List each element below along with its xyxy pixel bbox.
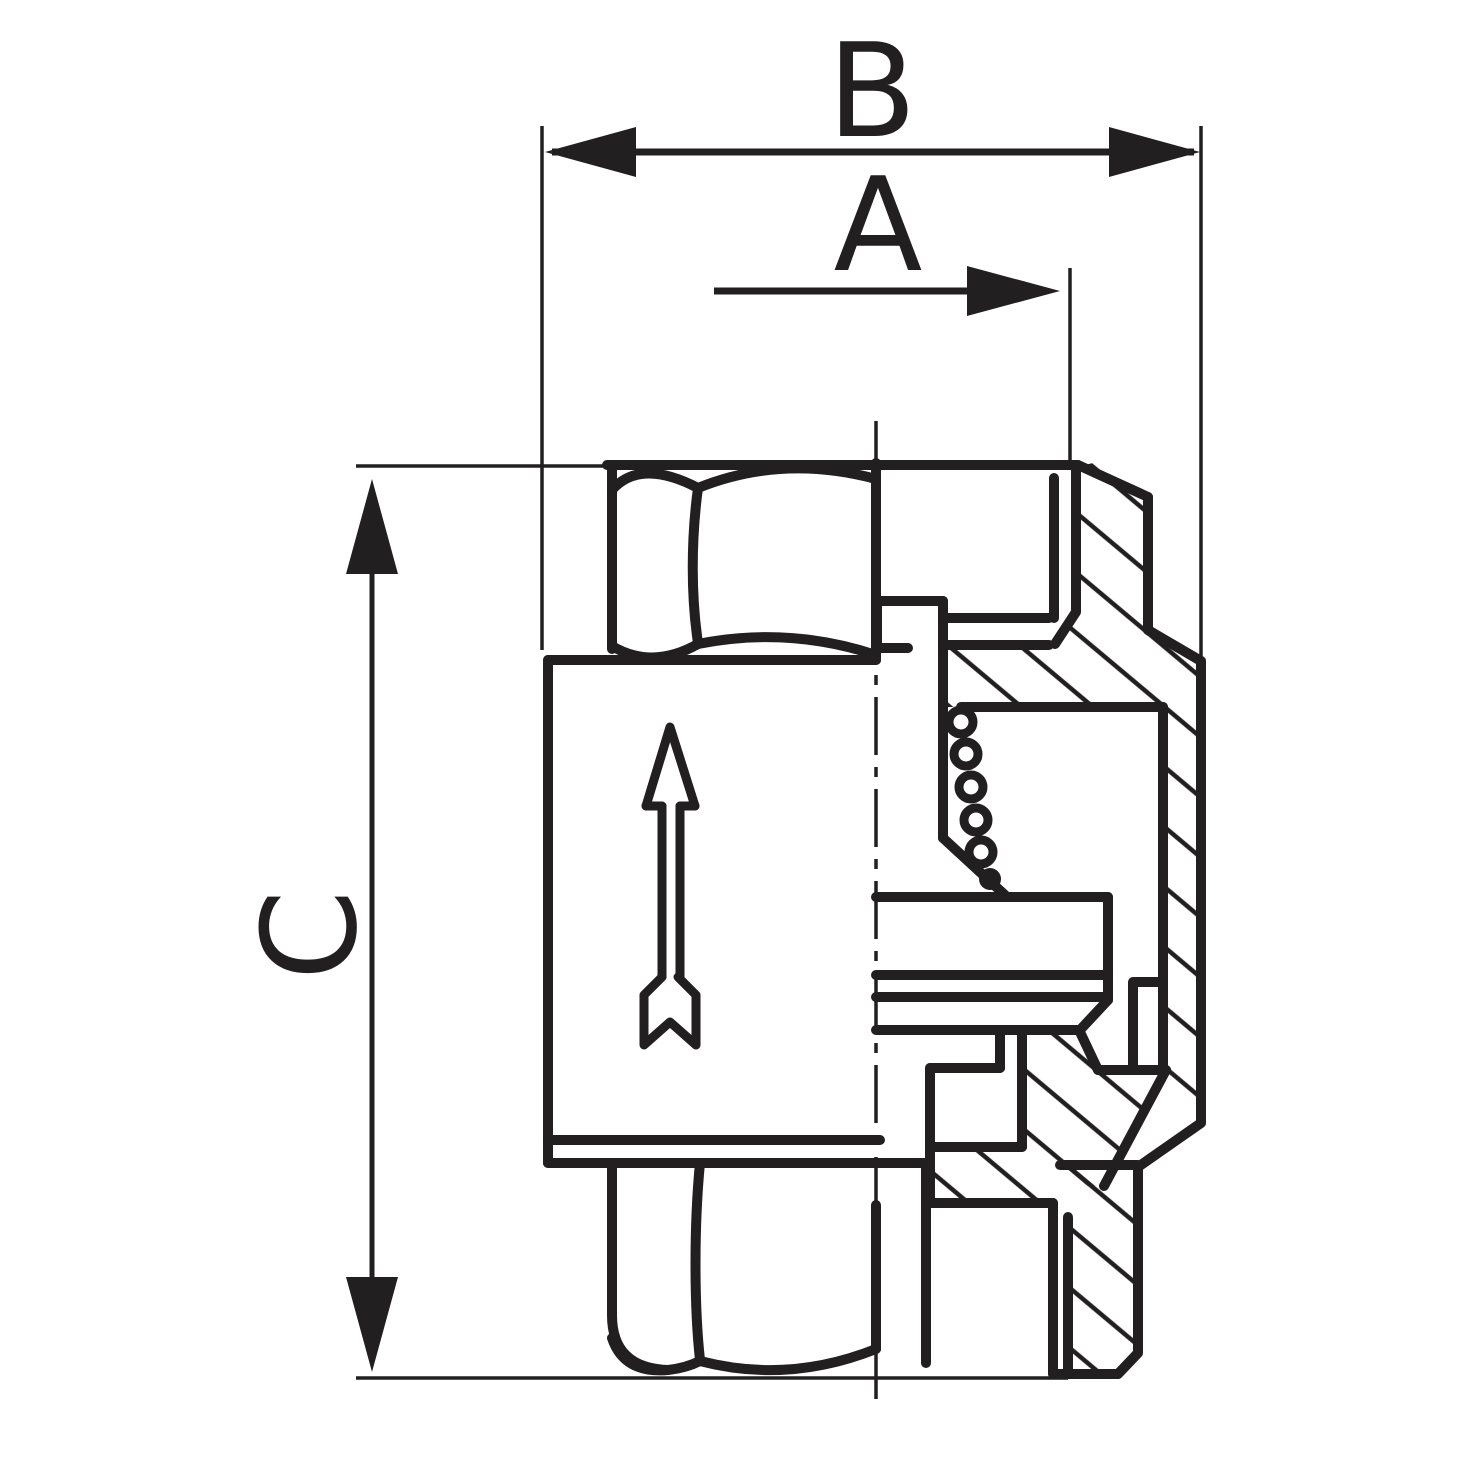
bottom-nut-facet-line xyxy=(696,1163,701,1360)
dimension-label-b: B xyxy=(827,15,916,167)
flow-arrow-head xyxy=(646,727,695,806)
drawing-canvas: B A C xyxy=(0,0,1480,1480)
spring-coil xyxy=(959,775,983,799)
flow-arrow-shaft xyxy=(662,806,680,977)
nut-facet-arc-top-left xyxy=(612,473,698,490)
arrowhead-right-icon xyxy=(1109,127,1200,177)
poppet-corner-chamfer xyxy=(1080,1000,1108,1030)
bottom-nut-left-edge xyxy=(612,1163,700,1370)
section-internals xyxy=(877,467,1201,1374)
dimension-label-a: A xyxy=(834,149,923,301)
spring-coil xyxy=(954,742,978,766)
bottom-thread-hatch xyxy=(1068,1167,1138,1373)
thread-relief-channel xyxy=(1133,982,1163,1070)
spring-coil xyxy=(949,710,973,734)
spring xyxy=(949,710,1001,890)
nut-facet-line xyxy=(693,488,698,643)
spring-coil xyxy=(969,840,993,864)
bottom-nut-facet-arc-wide xyxy=(700,1349,876,1370)
spring-end-coil xyxy=(979,868,1001,890)
dimension-label-c: C xyxy=(234,890,386,981)
arrowhead-a-icon xyxy=(967,266,1060,316)
bottom-hex-nut xyxy=(612,1163,876,1370)
nut-facet-arc-bottom-wide xyxy=(698,637,876,655)
dimension-a: A xyxy=(714,149,1070,462)
body-sleeve xyxy=(548,660,930,1163)
arrowhead-down-icon xyxy=(346,1277,398,1372)
flow-arrow-fletching xyxy=(644,977,696,1045)
check-valve-drawing: B A C xyxy=(0,0,1480,1480)
flow-arrow-icon xyxy=(644,727,696,1045)
spring-coil xyxy=(964,808,988,832)
arrowhead-up-icon xyxy=(346,479,398,574)
arrowhead-left-icon xyxy=(545,127,636,177)
nut-facet-arc-top-wide xyxy=(698,468,876,488)
